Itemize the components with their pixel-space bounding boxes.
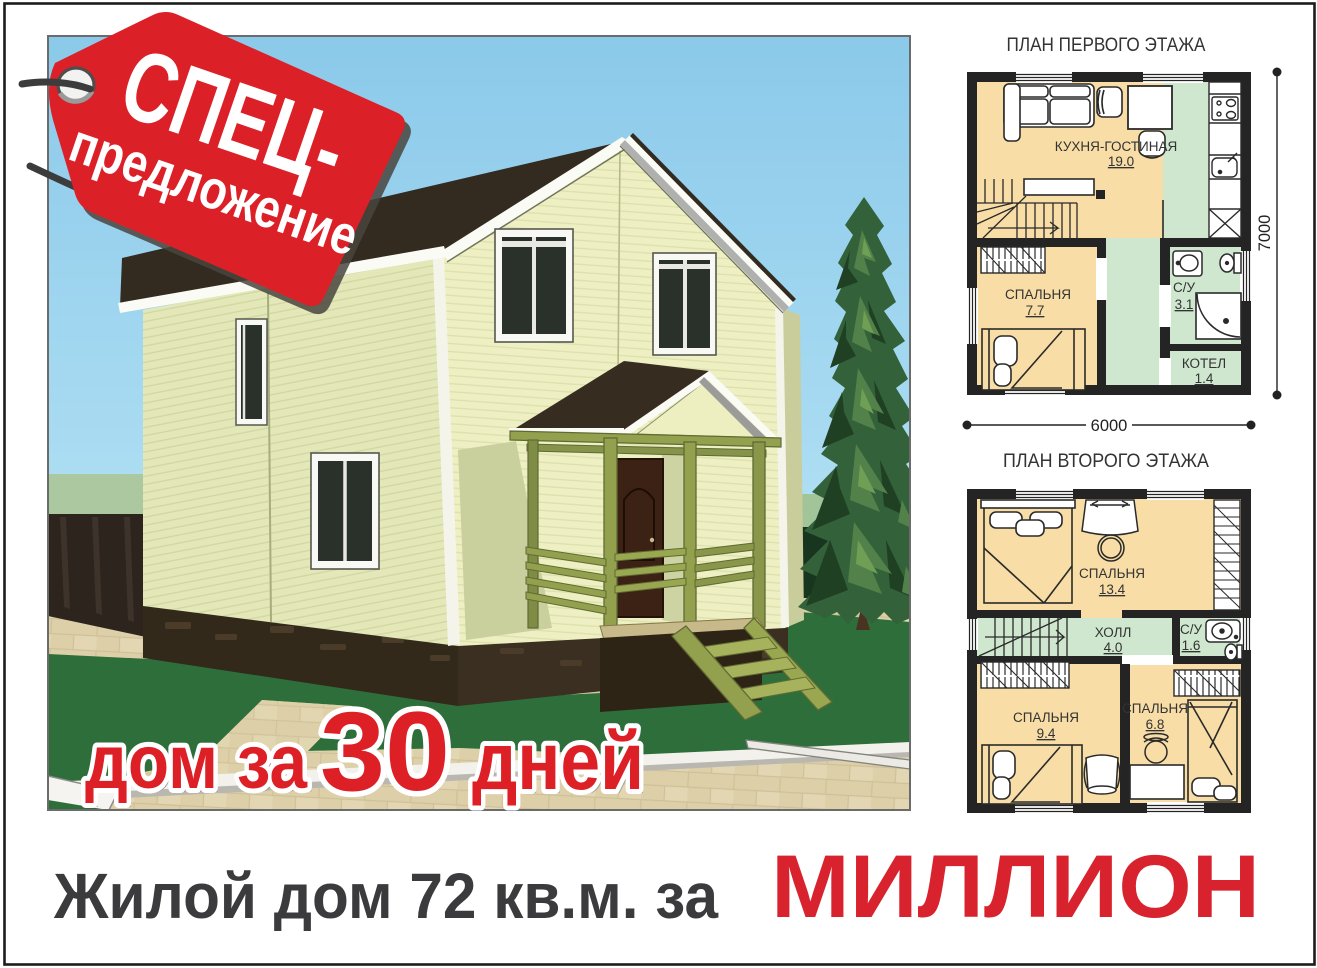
svg-text:КОТЕЛ: КОТЕЛ: [1182, 356, 1226, 371]
svg-text:1.6: 1.6: [1182, 638, 1201, 653]
svg-text:30: 30: [320, 689, 450, 814]
svg-text:7.7: 7.7: [1026, 303, 1045, 318]
svg-text:3.1: 3.1: [1175, 297, 1194, 312]
svg-text:ПЛАН ВТОРОГО ЭТАЖА: ПЛАН ВТОРОГО ЭТАЖА: [1003, 451, 1209, 472]
svg-text:1.4: 1.4: [1195, 371, 1214, 386]
svg-text:СПАЛЬНЯ: СПАЛЬНЯ: [1122, 701, 1188, 716]
svg-text:6.8: 6.8: [1146, 717, 1165, 732]
svg-text:7000: 7000: [1256, 215, 1274, 252]
svg-text:4.0: 4.0: [1104, 640, 1123, 655]
svg-text:19.0: 19.0: [1108, 154, 1134, 169]
svg-text:дней: дней: [472, 716, 644, 807]
svg-text:СПАЛЬНЯ: СПАЛЬНЯ: [1013, 710, 1079, 725]
svg-text:ПЛАН ПЕРВОГО ЭТАЖА: ПЛАН ПЕРВОГО ЭТАЖА: [1007, 35, 1206, 56]
svg-text:9.4: 9.4: [1037, 726, 1056, 741]
svg-text:СПАЛЬНЯ: СПАЛЬНЯ: [1005, 287, 1071, 302]
svg-text:13.4: 13.4: [1099, 582, 1126, 597]
svg-text:КУХНЯ-ГОСТИНАЯ: КУХНЯ-ГОСТИНАЯ: [1055, 139, 1177, 154]
svg-text:Жилой дом 72 кв.м. за: Жилой дом 72 кв.м. за: [53, 860, 718, 932]
svg-text:ХОЛЛ: ХОЛЛ: [1095, 625, 1132, 640]
svg-text:С/У: С/У: [1173, 280, 1196, 295]
svg-text:МИЛЛИОН: МИЛЛИОН: [771, 836, 1260, 936]
svg-text:дом за: дом за: [85, 720, 308, 805]
svg-text:С/У: С/У: [1180, 622, 1203, 637]
svg-text:СПАЛЬНЯ: СПАЛЬНЯ: [1079, 566, 1145, 581]
svg-text:6000: 6000: [1091, 417, 1128, 435]
